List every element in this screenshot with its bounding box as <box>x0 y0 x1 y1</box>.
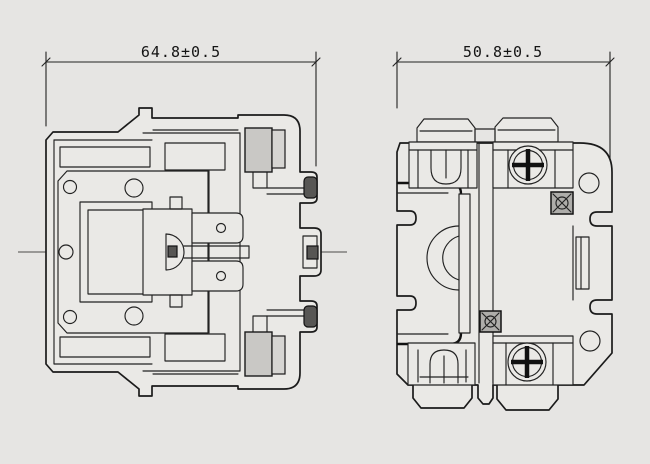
side-screw-bottom <box>304 306 317 327</box>
screw-terminal-top <box>493 142 573 188</box>
screw-terminal-bottom <box>493 336 573 385</box>
core-bar <box>459 194 470 333</box>
front-view-dimension-label: 64.8±0.5 <box>141 43 221 61</box>
terminal-block-top <box>245 128 272 172</box>
side-view <box>397 118 612 410</box>
contactor-drawing: 64.8±0.5 50.8±0.5 <box>0 0 650 464</box>
mounting-hole-bottom <box>580 331 600 351</box>
terminal-block-bottom <box>245 332 272 376</box>
drawing-canvas: 64.8±0.5 50.8±0.5 <box>0 0 650 464</box>
pivot-pin <box>168 246 177 257</box>
front-view <box>18 108 347 396</box>
hole <box>64 311 77 324</box>
phillips-screw-top <box>509 146 547 184</box>
wire-terminal-top <box>409 142 477 188</box>
spade-terminal-bottom <box>192 261 243 291</box>
side-view-dimension-label: 50.8±0.5 <box>463 43 543 61</box>
hole <box>125 307 143 325</box>
center-lug <box>307 246 318 259</box>
hole <box>64 181 77 194</box>
phillips-screw-bottom <box>508 343 546 381</box>
hole <box>125 179 143 197</box>
square-screw-top <box>551 192 573 214</box>
square-screw-bottom <box>480 311 501 332</box>
mounting-hole-top <box>579 173 599 193</box>
side-screw-top <box>304 177 317 198</box>
hole <box>59 245 73 259</box>
terminal-caps-top <box>417 118 558 142</box>
wire-terminal-bottom <box>408 343 475 385</box>
spade-terminal-top <box>192 213 243 243</box>
